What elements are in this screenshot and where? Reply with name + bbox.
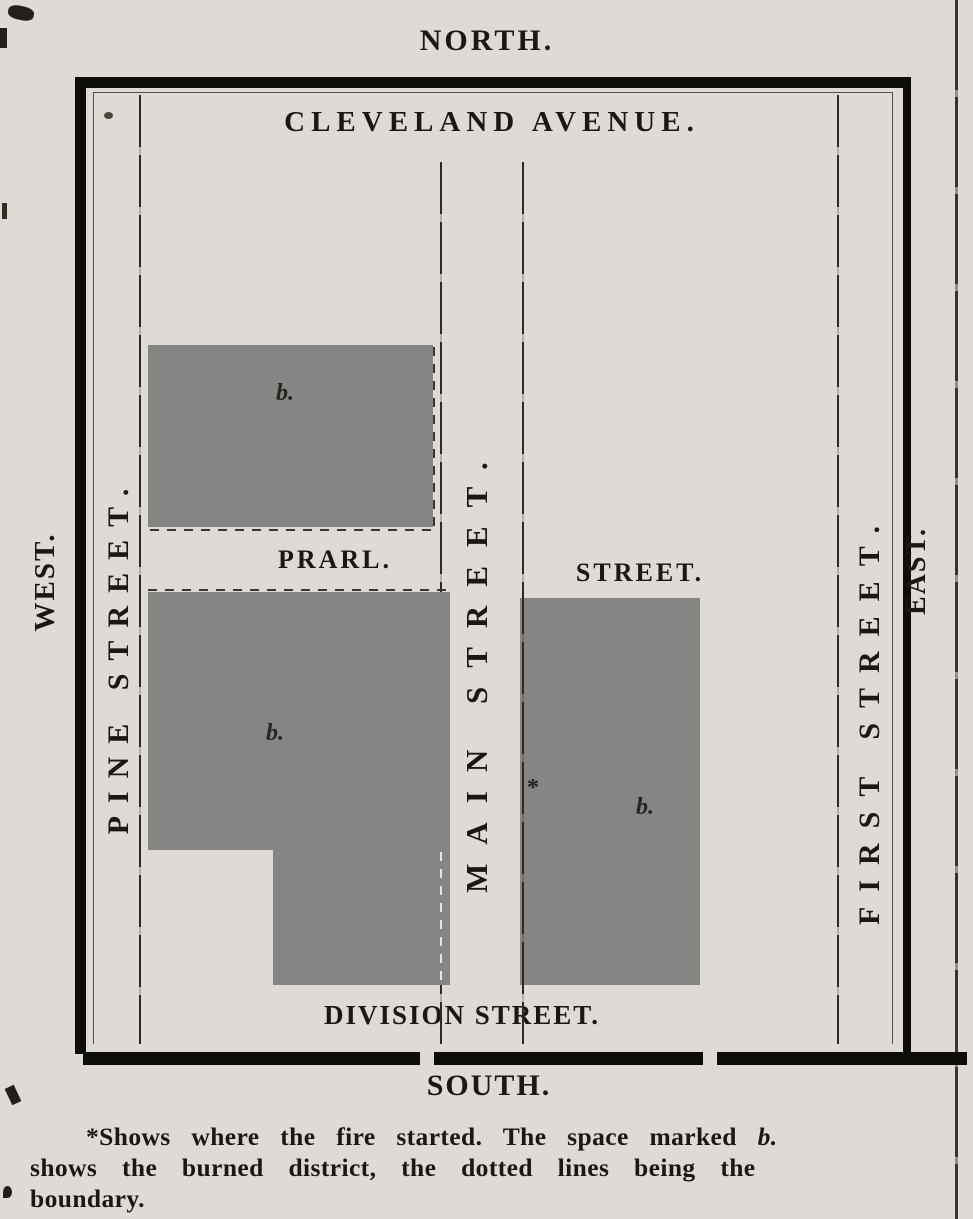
ink-speck — [3, 1186, 12, 1198]
pine-street-label: PINE STREET. — [101, 405, 137, 905]
ink-speck — [104, 112, 113, 119]
burned-block-upper-left — [148, 345, 433, 527]
main-street-line-east — [522, 162, 524, 1044]
pearl-street-west-label: PRARL. — [235, 545, 435, 575]
compass-north-label: NORTH. — [337, 24, 637, 58]
compass-south-label: SOUTH. — [389, 1069, 589, 1103]
compass-east-label: EAST. — [899, 506, 935, 636]
ink-speck — [5, 1085, 22, 1106]
division-street-label: DIVISION STREET. — [262, 1000, 662, 1031]
caption-line-2: shows the burned district, the dotted li… — [30, 1153, 756, 1183]
ink-speck — [2, 203, 7, 219]
burned-marker-b: b. — [266, 720, 284, 747]
fire-origin-marker: * — [527, 775, 539, 802]
burned-block-lower-left — [148, 592, 450, 850]
bottom-border-gap — [703, 1052, 717, 1065]
ink-speck — [0, 28, 7, 48]
burned-marker-b: b. — [276, 380, 294, 407]
newspaper-fire-map: NORTH. b. b. b. * CLEVELAND AVENUE. PRAR… — [0, 0, 973, 1219]
burned-block-right — [520, 598, 700, 985]
pine-street-line — [139, 95, 141, 1044]
column-rule — [955, 0, 958, 1219]
caption-line-3: boundary. — [30, 1184, 145, 1214]
boundary-dotted-line — [150, 529, 433, 531]
boundary-dotted-line — [433, 347, 435, 527]
caption-burned-marker-ref: b. — [758, 1122, 778, 1151]
first-street-line — [837, 95, 839, 1044]
caption-line-1: *Shows where the fire started. The space… — [86, 1122, 778, 1152]
boundary-dotted-line — [148, 589, 448, 591]
compass-west-label: WEST. — [27, 512, 63, 652]
main-street-label: MAIN STREET. — [459, 388, 495, 948]
ink-speck — [7, 3, 35, 22]
bottom-border-gap — [420, 1052, 434, 1065]
boundary-dotted-line — [440, 852, 442, 983]
caption-line-1-text: *Shows where the fire started. The space… — [86, 1122, 737, 1151]
pearl-street-east-label: STREET. — [540, 558, 740, 588]
first-street-label: FIRST STREET. — [852, 428, 888, 1008]
bottom-border — [83, 1052, 967, 1065]
burned-marker-b: b. — [636, 794, 654, 821]
burned-block-lower-left-extension — [273, 850, 450, 985]
cleveland-avenue-label: CLEVELAND AVENUE. — [162, 106, 822, 139]
